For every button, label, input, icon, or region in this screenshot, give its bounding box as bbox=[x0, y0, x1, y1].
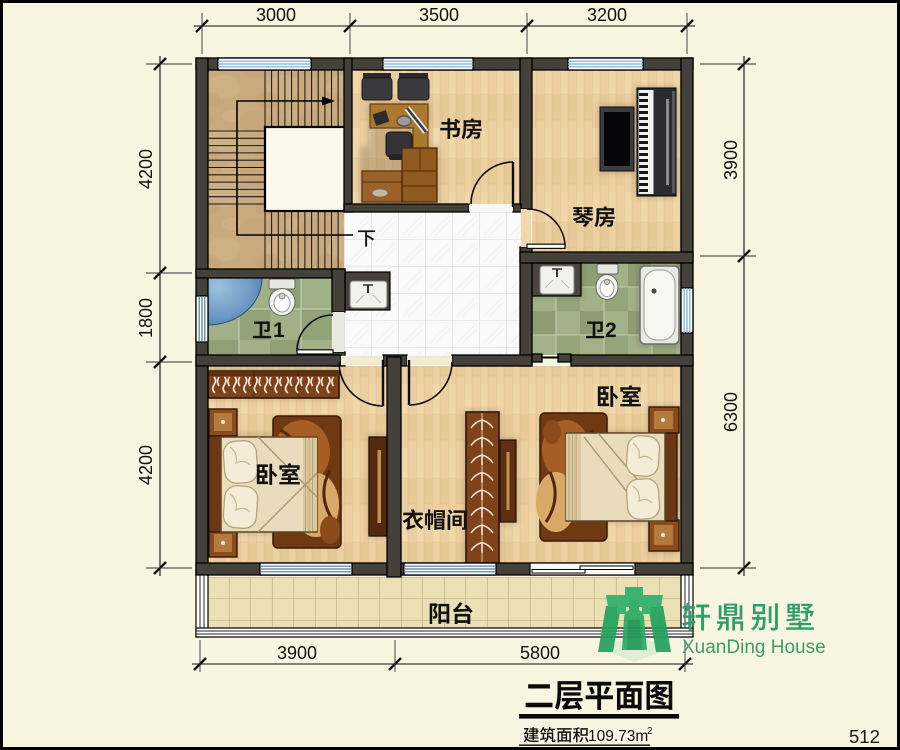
svg-text:3000: 3000 bbox=[256, 5, 296, 25]
svg-text:512: 512 bbox=[849, 726, 880, 747]
svg-text:1: 1 bbox=[273, 319, 285, 342]
svg-text:2: 2 bbox=[647, 726, 653, 737]
svg-text:1800: 1800 bbox=[136, 298, 156, 338]
svg-text:4200: 4200 bbox=[136, 445, 156, 485]
svg-text:3900: 3900 bbox=[721, 140, 741, 180]
svg-text:5800: 5800 bbox=[520, 643, 560, 663]
svg-text:3200: 3200 bbox=[587, 5, 627, 25]
svg-text:4200: 4200 bbox=[136, 149, 156, 189]
svg-text:109.73m: 109.73m bbox=[588, 728, 648, 745]
svg-text:6300: 6300 bbox=[721, 392, 741, 432]
svg-text:3500: 3500 bbox=[419, 5, 459, 25]
svg-text:3900: 3900 bbox=[277, 643, 317, 663]
svg-text:XuanDing House: XuanDing House bbox=[682, 637, 826, 658]
svg-text:2: 2 bbox=[605, 319, 617, 342]
